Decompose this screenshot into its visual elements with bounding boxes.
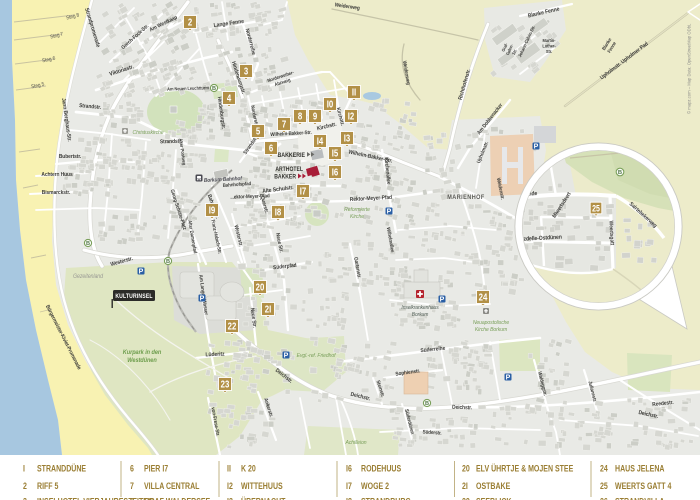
svg-text:Bubertstr.: Bubertstr. <box>59 154 82 160</box>
svg-text:Bismarckstr.: Bismarckstr. <box>42 190 71 196</box>
svg-text:I8: I8 <box>275 206 282 217</box>
svg-text:P: P <box>440 297 445 304</box>
svg-text:BAKKER: BAKKER <box>274 174 296 180</box>
svg-text:NeuapostolischeKirche Borkum: NeuapostolischeKirche Borkum <box>473 320 509 333</box>
svg-text:I3: I3 <box>344 132 351 143</box>
svg-text:WOGE 2: WOGE 2 <box>361 481 390 491</box>
svg-text:I0: I0 <box>327 98 334 109</box>
svg-text:23: 23 <box>221 378 230 389</box>
svg-text:BAKKERIE: BAKKERIE <box>277 153 305 159</box>
svg-text:B: B <box>425 401 429 407</box>
svg-text:9: 9 <box>313 110 317 121</box>
svg-text:20: 20 <box>462 464 470 474</box>
svg-text:HAUS JELENA: HAUS JELENA <box>615 464 665 474</box>
svg-text:P: P <box>200 296 205 303</box>
svg-text:OSTBAKE: OSTBAKE <box>476 481 511 491</box>
svg-text:Christuskirche: Christuskirche <box>132 130 163 136</box>
svg-text:I7: I7 <box>346 481 352 491</box>
svg-text:2: 2 <box>188 16 192 27</box>
svg-text:I6: I6 <box>346 464 352 474</box>
svg-text:Evgl.-ref. Friedhof: Evgl.-ref. Friedhof <box>297 353 336 359</box>
svg-text:P: P <box>506 375 511 382</box>
svg-text:2: 2 <box>23 481 27 491</box>
svg-text:WITTEHUUS: WITTEHUUS <box>241 481 283 491</box>
svg-text:RODEHUUS: RODEHUUS <box>361 464 402 474</box>
svg-text:K 20: K 20 <box>241 464 256 474</box>
svg-text:Weertsgatt: Weertsgatt <box>607 221 615 246</box>
svg-text:Achilleion: Achilleion <box>345 440 367 446</box>
svg-text:20: 20 <box>256 281 265 292</box>
svg-text:24: 24 <box>479 291 488 302</box>
svg-text:I4: I4 <box>317 135 324 146</box>
svg-text:PIER I7: PIER I7 <box>144 464 169 474</box>
svg-text:VILLA CENTRAL: VILLA CENTRAL <box>144 481 200 491</box>
svg-text:P: P <box>534 144 539 151</box>
svg-text:WEERTS GATT 4: WEERTS GATT 4 <box>615 481 672 491</box>
svg-text:24: 24 <box>600 464 608 474</box>
svg-text:P: P <box>139 269 144 276</box>
svg-text:6: 6 <box>130 464 134 474</box>
svg-text:B: B <box>618 170 622 176</box>
svg-text:I9: I9 <box>209 204 216 215</box>
svg-text:II: II <box>352 86 356 97</box>
svg-text:I6: I6 <box>332 166 339 177</box>
svg-text:RIFF 5: RIFF 5 <box>37 481 59 491</box>
svg-text:I: I <box>23 464 25 474</box>
svg-text:P: P <box>387 209 392 216</box>
svg-text:II: II <box>227 464 231 474</box>
svg-text:ARTHOTEL: ARTHOTEL <box>275 167 303 173</box>
svg-text:ELV ÜHRTJE & MOJEN STEE: ELV ÜHRTJE & MOJEN STEE <box>476 464 574 474</box>
svg-text:3: 3 <box>244 65 248 76</box>
svg-text:Achtern Huus: Achtern Huus <box>41 172 72 178</box>
svg-text:I5: I5 <box>332 147 339 158</box>
svg-text:B: B <box>166 259 170 265</box>
svg-text:I2: I2 <box>348 110 355 121</box>
svg-text:© mapz.com – Map Data: OpenStr: © mapz.com – Map Data: OpenStreetMap ODb… <box>687 23 692 114</box>
svg-text:STRANDDÜNE: STRANDDÜNE <box>37 464 87 474</box>
svg-text:8: 8 <box>298 110 302 121</box>
svg-text:KULTURINSEL: KULTURINSEL <box>115 294 153 300</box>
svg-text:6: 6 <box>269 142 273 153</box>
svg-text:2I: 2I <box>265 303 271 314</box>
svg-text:MARIENHOF: MARIENHOF <box>447 195 484 201</box>
svg-text:Kurpark in denWestdünen: Kurpark in denWestdünen <box>123 350 162 364</box>
svg-text:25: 25 <box>592 204 600 214</box>
svg-text:7: 7 <box>130 481 134 491</box>
svg-text:Gezeitenland: Gezeitenland <box>73 274 104 280</box>
svg-text:25: 25 <box>600 481 608 491</box>
svg-text:4: 4 <box>227 92 231 103</box>
svg-text:P: P <box>284 353 289 360</box>
svg-text:Deichstr.: Deichstr. <box>452 404 473 411</box>
svg-text:5: 5 <box>256 125 260 136</box>
svg-text:I2: I2 <box>227 481 233 491</box>
svg-text:B: B <box>86 241 90 247</box>
svg-text:22: 22 <box>228 320 237 331</box>
svg-text:Lüderitz: Lüderitz <box>205 351 225 358</box>
svg-text:7: 7 <box>282 118 286 129</box>
svg-text:B: B <box>212 86 216 92</box>
svg-text:I7: I7 <box>300 185 307 196</box>
svg-text:2I: 2I <box>462 481 468 491</box>
